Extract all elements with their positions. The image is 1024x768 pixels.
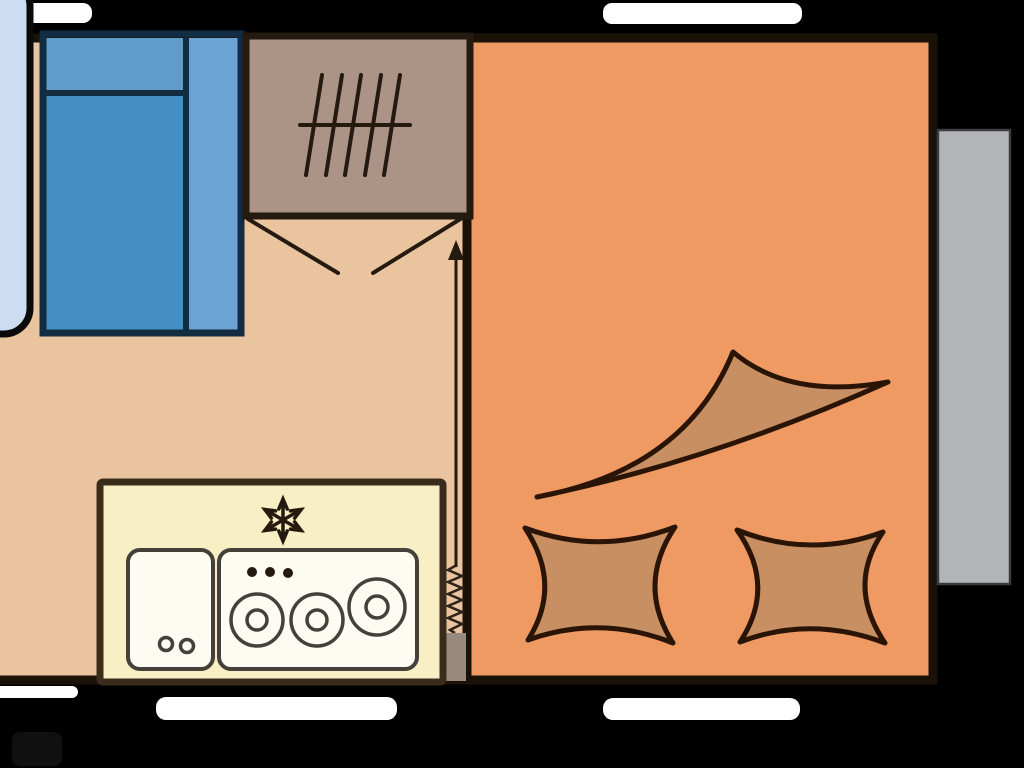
knob-dots-icon: [247, 567, 293, 578]
slideout-panel: [938, 130, 1010, 584]
shadow-blob: [12, 732, 62, 766]
seat-cushion-left: [525, 527, 675, 643]
bed-side-rail: [186, 38, 238, 330]
spring-icon: [448, 566, 462, 633]
floor-plan-canvas: [0, 0, 1024, 768]
floor-plan-svg: [0, 0, 1024, 768]
lounge-cushions: [525, 352, 888, 643]
sink: [128, 550, 213, 669]
sink-knob: [160, 638, 173, 651]
entry-step: [445, 633, 466, 681]
bed: [43, 34, 241, 333]
wave-back-cushion: [537, 352, 888, 497]
stove-top: [219, 550, 417, 669]
bed-pillow: [46, 38, 186, 93]
bed-outline: [43, 34, 241, 333]
kitchen-counter: [100, 482, 443, 682]
burner-icon: [231, 579, 405, 646]
arrow-head: [448, 240, 464, 260]
bed-mattress: [46, 93, 186, 330]
door-swing-icon: [248, 218, 462, 273]
background: [0, 0, 1024, 768]
snowflake-icon: [263, 499, 304, 541]
windows: [0, 3, 802, 720]
lounge-floor: [467, 38, 933, 680]
wardrobe-box: [246, 36, 470, 216]
window-bottom-left-small: [0, 686, 78, 698]
window-bottom-middle: [156, 697, 397, 720]
window-top-left: [0, 3, 92, 23]
window-top-right: [603, 3, 802, 24]
sink-basin: [128, 550, 213, 669]
kitchen-unit: [100, 482, 443, 682]
sink-knob: [181, 640, 194, 653]
window-bottom-right: [603, 698, 800, 720]
arrow-up-icon: [448, 240, 464, 567]
front-lounge-panel: [0, 0, 30, 334]
wardrobe: [246, 36, 470, 216]
seat-cushion-right: [737, 530, 885, 643]
stove: [219, 550, 417, 669]
wardrobe-rail-icon: [300, 75, 410, 175]
bedroom-kitchen-floor: [0, 38, 470, 680]
